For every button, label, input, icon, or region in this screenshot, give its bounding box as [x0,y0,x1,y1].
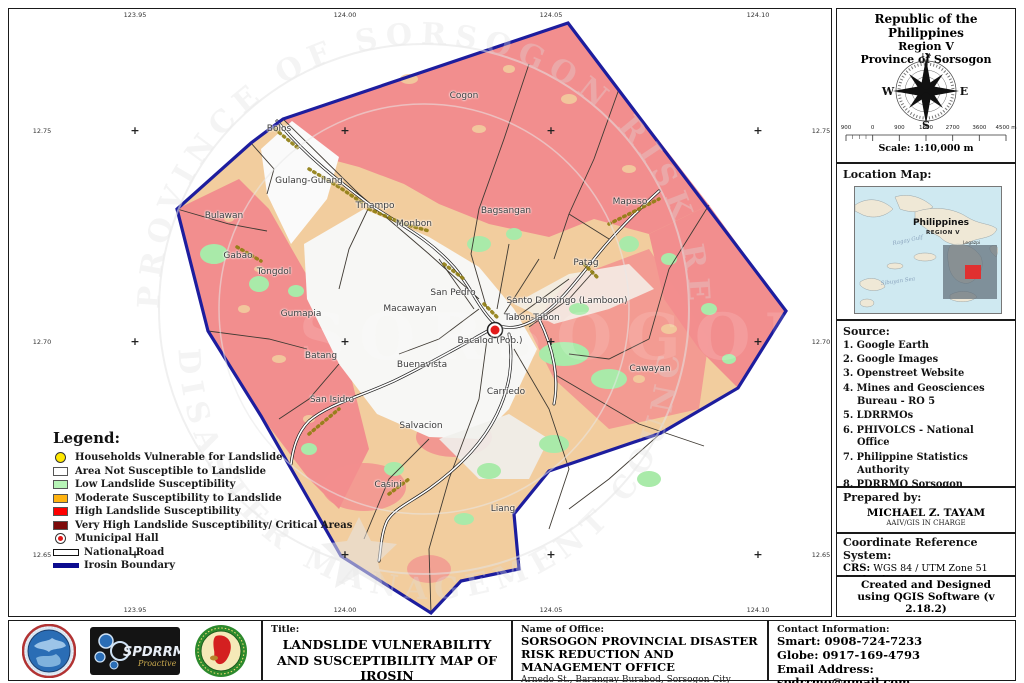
legend-swatch-rect-icon [53,521,68,530]
source-item: 4. Mines and Geosciences Bureau - RO 5 [843,383,1009,409]
legend-item: High Landslide Susceptibility [53,505,303,519]
barangay-label: Bagsangan [481,206,531,216]
barangay-label: Liang [491,504,515,514]
compass-rose-icon: N S W E [866,53,986,129]
legend-title: Legend: [53,429,303,447]
barangay-label: Mapaso [613,197,648,207]
barangay-label: Monbon [396,219,432,229]
legend-swatch-hall-icon [55,533,66,544]
graticule-cross: + [753,124,762,137]
latitude-label-right: 12.70 [812,338,831,346]
legend-item-label: High Landslide Susceptibility [75,506,241,517]
legend-item: National Road [53,546,303,560]
legend-item-label: National Road [84,547,164,558]
scale-bar: 90009001800270036004500 m [843,125,1009,143]
latitude-label-right: 12.65 [812,551,831,559]
contact-globe: Globe: 0917-169-4793 [777,649,1007,663]
barangay-label: Buenavista [397,360,447,370]
scale-bar-tick-label: 4500 m [995,125,1016,131]
scale-caption: Scale: 1:10,000 m [837,143,1015,154]
legend-item: Households Vulnerable for Landslide [53,451,303,465]
office-address: Arnedo St., Barangay Burabod, Sorsogon C… [521,675,759,683]
credit-text: Created and Designed using QGIS Software… [837,579,1015,615]
legend-swatch-rect-icon [53,494,68,503]
crs-title: Coordinate Reference System: [843,536,1009,562]
latitude-label-left: 12.65 [33,551,52,559]
legend-item-label: Moderate Susceptibility to Landslide [75,493,282,504]
legend-item-label: Area Not Susceptible to Landslide [75,466,266,477]
prepared-by-role: AAIV/GIS IN CHARGE [843,519,1009,527]
barangay-label: Gabao [223,251,252,261]
legend-item: Irosin Boundary [53,559,303,573]
location-map-title: Location Map: [843,168,931,181]
location-irosin-marker [965,265,981,279]
map-layout-page: PROVINCE OF SORSOGON RISK REDUCTION DISA… [0,0,1024,683]
graticule-cross: + [340,548,349,561]
graticule-cross: + [546,335,555,348]
barangay-label: Gulang-Gulang [275,176,343,186]
source-title: Source: [843,325,1009,338]
graticule-cross: + [546,124,555,137]
crs-value-line: CRS: WGS 84 / UTM Zone 51 [843,563,1009,574]
graticule-cross: + [546,548,555,561]
prepared-by-title: Prepared by: [843,491,1009,504]
scale-bar-tick-label: 900 [894,125,905,131]
spdrrmc-subtext: Proactive [137,659,177,668]
barangay-label: San Pedro [430,288,475,298]
footer-title-box: Title: LANDSLIDE VULNERABILITY AND SUSCE… [262,620,512,681]
contact-email: Email Address: spdrrmo@gmail.com [777,663,1007,683]
header-country: Republic of the Philippines [837,12,1015,40]
scale-bar-tick-label: 900 [841,125,852,131]
legend-item: Low Landslide Susceptibility [53,478,303,492]
scale-bar-tick-label: 0 [871,125,875,131]
barangay-label: Tongdol [257,267,292,277]
legend-item: Area Not Susceptible to Landslide [53,465,303,479]
svg-text:SORSOGON: SORSOGON [299,300,831,375]
legend-items: Households Vulnerable for LandslideArea … [53,451,303,573]
panel-credit: Created and Designed using QGIS Software… [836,576,1016,617]
barangay-label: Batang [305,351,337,361]
header-region: Region V [837,40,1015,53]
barangay-label: Tabon-Tabon [504,313,559,323]
graticule-cross: + [340,124,349,137]
location-region-label: REGION V [926,230,960,236]
barangay-label: Casini [374,480,401,490]
latitude-label-left: 12.70 [33,338,52,346]
longitude-label-top: 123.95 [124,11,147,19]
panel-source: Source: 1. Google Earth2. Google Images3… [836,320,1016,487]
legend-swatch-rect-icon [53,507,68,516]
barangay-label: Carriedo [487,387,525,397]
legend-item: Very High Landslide Susceptibility/ Crit… [53,519,303,533]
contact-smart: Smart: 0908-724-7233 [777,635,1007,649]
legend-item-label: Municipal Hall [75,533,159,544]
legend-swatch-circle-icon [55,452,66,463]
location-map-image: Philippines REGION V Ragay Gulf Sibuyan … [854,186,1002,314]
barangay-label: San Isidro [310,395,354,405]
spdrrmc-text: SPDRRMC [123,645,180,660]
legend-item-label: Households Vulnerable for Landslide [75,452,283,463]
panel-crs: Coordinate Reference System: CRS: WGS 84… [836,533,1016,576]
legend-item: Moderate Susceptibility to Landslide [53,492,303,506]
scale-bar-tick-label: 1800 [919,125,933,131]
graticule-cross: + [340,335,349,348]
barangay-label: Cogon [450,91,479,101]
source-item: 7. Philippine Statistics Authority [843,452,1009,478]
footer-logos: SPDRRMC Proactive [8,620,262,681]
source-item: 6. PHIVOLCS - National Office [843,425,1009,451]
latitude-label-left: 12.75 [33,127,52,135]
svg-text:W: W [881,85,895,98]
svg-text:E: E [960,85,968,98]
barangay-label: Gumapia [281,309,322,319]
longitude-label-bottom: 124.00 [334,606,357,614]
barangay-label: Cawayan [629,364,670,374]
longitude-label-bottom: 124.05 [540,606,563,614]
legend-swatch-line-icon [53,563,79,568]
source-item: 2. Google Images [843,354,1009,367]
map-legend: Legend: Households Vulnerable for Landsl… [53,429,303,573]
longitude-label-top: 124.00 [334,11,357,19]
barangay-label: Patag [573,258,598,268]
office-name: SORSOGON PROVINCIAL DISASTER RISK REDUCT… [521,635,759,675]
legend-swatch-road-icon [53,549,79,556]
barangay-label: Salvacion [399,421,442,431]
longitude-label-bottom: 124.10 [747,606,770,614]
prepared-by-name: MICHAEL Z. TAYAM [843,507,1009,519]
map-title: LANDSLIDE VULNERABILITY AND SUSCEPTIBILI… [271,637,503,683]
legend-item: Municipal Hall [53,532,303,546]
graticule-cross: + [130,124,139,137]
compass-n: N [921,53,931,60]
province-of-sorsogon-seal [22,624,76,678]
map-frame: PROVINCE OF SORSOGON RISK REDUCTION DISA… [8,8,832,617]
barangay-label: Tinampo [356,201,395,211]
barangay-label: Bolos [267,124,291,134]
scale-bar-tick-label: 2700 [946,125,960,131]
legend-item-label: Low Landslide Susceptibility [75,479,235,490]
spdrrmc-logo: SPDRRMC Proactive [90,627,180,675]
source-item: 1. Google Earth [843,340,1009,353]
source-item: 5. LDRRMOs [843,410,1009,423]
panel-location-map: Location Map: Philippines REGION V Ragay… [836,163,1016,320]
longitude-label-bottom: 123.95 [124,606,147,614]
barangay-label: Bulawan [205,211,243,221]
graticule-cross: + [753,335,762,348]
latitude-label-right: 12.75 [812,127,831,135]
legend-item-label: Irosin Boundary [84,560,175,571]
footer-contact-box: Contact Information: Smart: 0908-724-723… [768,620,1016,681]
longitude-label-top: 124.10 [747,11,770,19]
barangay-label: Santo Domingo (Lamboon) [506,296,627,306]
graticule-cross: + [753,548,762,561]
pdrrmo-seal [194,624,248,678]
location-country-label: Philippines [913,218,969,228]
panel-prepared-by: Prepared by: MICHAEL Z. TAYAM AAIV/GIS I… [836,487,1016,533]
panel-header: Republic of the Philippines Region V Pro… [836,8,1016,163]
barangay-label: Bacalod (Pob.) [458,336,523,346]
footer-office-box: Name of Office: SORSOGON PROVINCIAL DISA… [512,620,768,681]
source-item: 3. Openstreet Website [843,368,1009,381]
legend-swatch-rect-icon [53,467,68,476]
location-city-label: Legazpi [963,240,980,246]
graticule-cross: + [130,335,139,348]
title-label: Title: [271,624,503,635]
legend-swatch-rect-icon [53,480,68,489]
scale-bar-tick-label: 3600 [972,125,986,131]
legend-item-label: Very High Landslide Susceptibility/ Crit… [75,520,352,531]
longitude-label-top: 124.05 [540,11,563,19]
barangay-label: Macawayan [383,304,436,314]
